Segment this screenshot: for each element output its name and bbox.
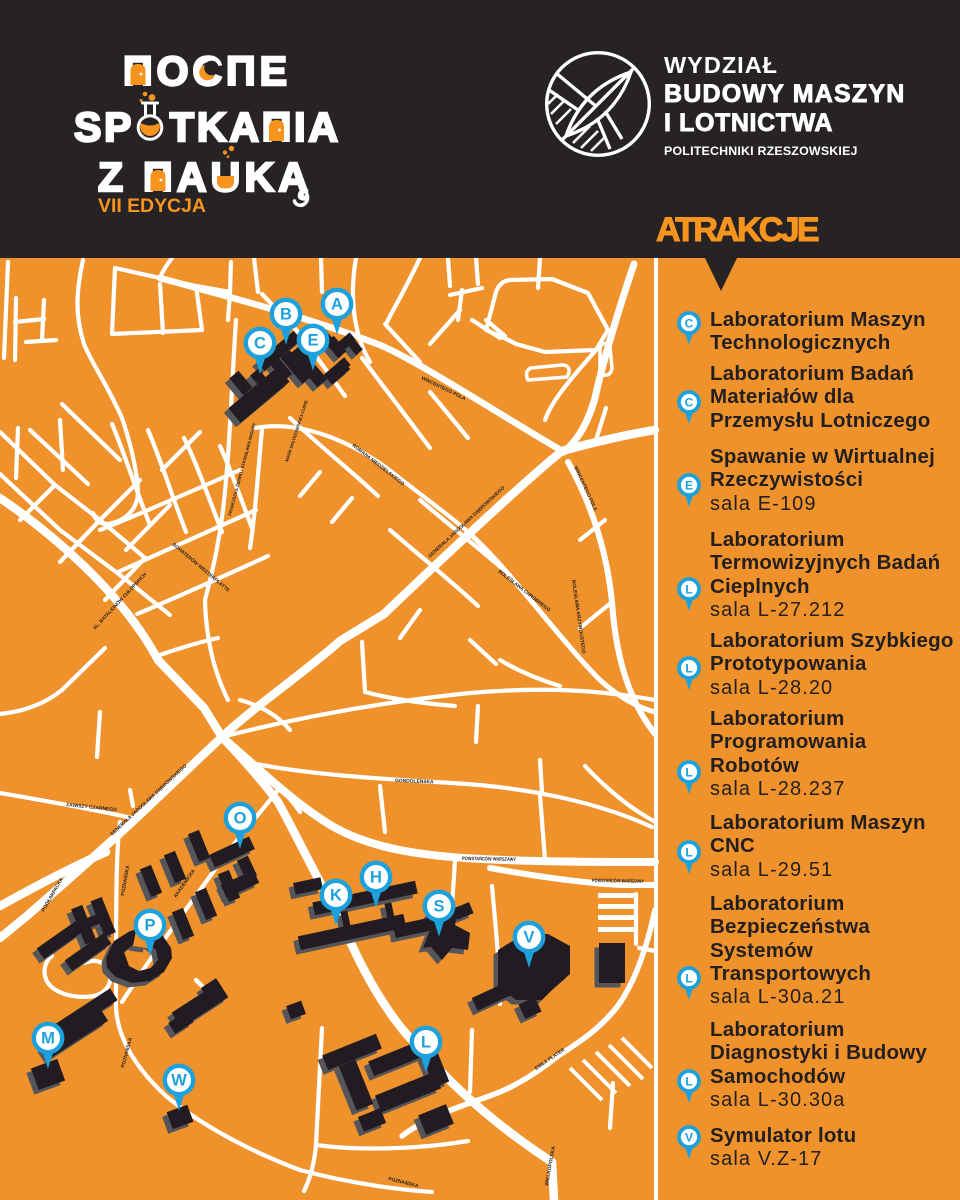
svg-text:BUDOWY MASZYN: BUDOWY MASZYN xyxy=(664,80,906,108)
svg-text:E: E xyxy=(685,478,693,492)
svg-text:Z ΠAUKĄ: Z ΠAUKĄ xyxy=(98,154,308,200)
svg-text:L: L xyxy=(685,845,692,859)
svg-text:V: V xyxy=(685,1130,693,1144)
svg-text:L: L xyxy=(685,765,692,779)
svg-text:V: V xyxy=(523,929,534,947)
svg-text:C: C xyxy=(685,316,694,330)
svg-text:C: C xyxy=(254,335,266,353)
svg-text:L: L xyxy=(685,582,692,596)
svg-text:L: L xyxy=(685,1074,692,1088)
svg-text:SPOTKAΠIA: SPOTKAΠIA xyxy=(74,104,338,150)
svg-text:E: E xyxy=(307,332,318,350)
svg-text:S: S xyxy=(433,898,444,916)
svg-text:I LOTNICTWA: I LOTNICTWA xyxy=(664,109,833,137)
svg-text:W: W xyxy=(171,1072,187,1090)
svg-text:L: L xyxy=(685,971,692,985)
svg-text:VII EDYCJA: VII EDYCJA xyxy=(98,195,206,217)
svg-text:K: K xyxy=(330,887,342,905)
svg-text:A: A xyxy=(331,296,343,314)
svg-text:ATRAKCJE: ATRAKCJE xyxy=(656,211,822,249)
svg-text:C: C xyxy=(685,395,694,409)
svg-text:L: L xyxy=(685,661,692,675)
svg-text:H: H xyxy=(370,869,382,887)
svg-text:O: O xyxy=(234,810,247,828)
svg-text:P: P xyxy=(144,917,155,935)
svg-text:WYDZIAŁ: WYDZIAŁ xyxy=(664,52,778,78)
svg-text:B: B xyxy=(280,306,292,324)
svg-text:POLITECHNIKI RZESZOWSKIEJ: POLITECHNIKI RZESZOWSKIEJ xyxy=(664,144,858,158)
svg-text:L: L xyxy=(421,1034,431,1052)
svg-text:M: M xyxy=(41,1030,55,1048)
